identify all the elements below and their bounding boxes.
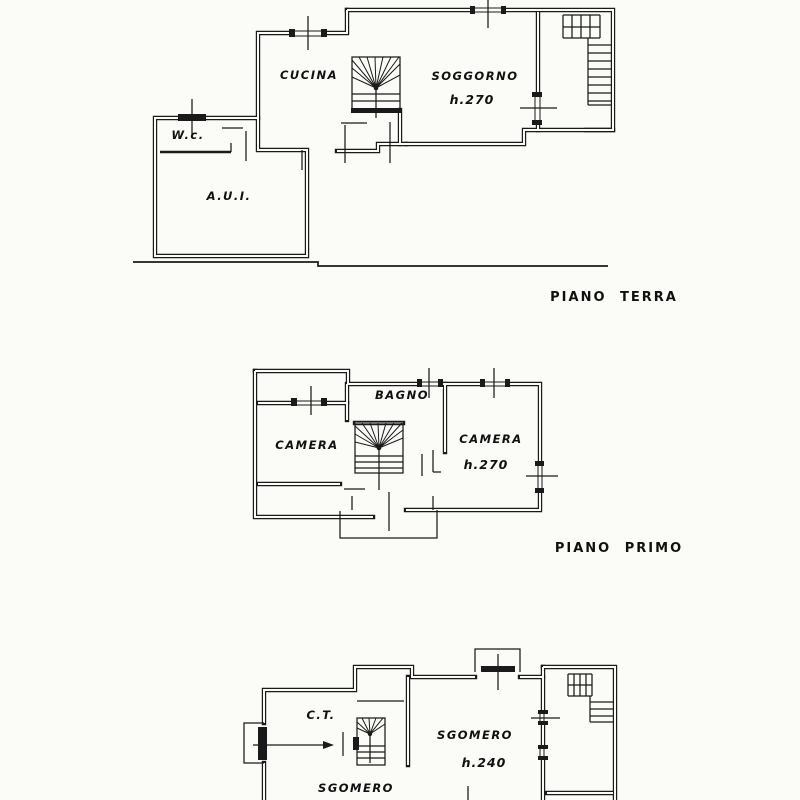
height-label-soggorno: h.270 <box>450 92 495 107</box>
room-label-bagno: BAGNO <box>375 388 429 402</box>
external-stair-ground <box>563 15 611 105</box>
room-label-sgomero-main: SGOMERO <box>437 728 513 742</box>
internal-stair-ground <box>351 57 401 118</box>
chimney <box>475 649 520 690</box>
room-label-soggorno: SOGGORNO <box>432 69 519 83</box>
window-storage-2 <box>537 745 549 760</box>
room-label-ct: C.T. <box>306 708 335 722</box>
room-label-wc: W.c. <box>171 128 204 142</box>
window-box-left <box>244 723 267 763</box>
window-camera-right-side <box>526 461 558 493</box>
floor-basement: C.T. SGOMERO h.240 SGOMERO <box>244 649 615 800</box>
room-label-camera-right: CAMERA <box>459 432 522 446</box>
room-label-aui: A.U.I. <box>206 189 252 203</box>
height-label-sgomero: h.240 <box>462 755 507 770</box>
room-label-camera-left: CAMERA <box>275 438 338 452</box>
window-kitchen <box>289 16 327 50</box>
external-stair-basement <box>568 674 613 722</box>
room-label-cucina: CUCINA <box>280 68 338 82</box>
ground-floor-walls <box>155 10 613 256</box>
ground-line <box>133 262 608 266</box>
window-living-top <box>470 0 506 28</box>
floor-piano-primo: BAGNO CAMERA CAMERA h.270 PIANO PRIMO <box>255 368 683 556</box>
caption-piano-primo: PIANO PRIMO <box>555 541 683 556</box>
height-label-camera: h.270 <box>464 457 509 472</box>
window-camera-left <box>291 386 327 415</box>
wc-counter <box>160 143 231 152</box>
floor-plan-drawing: CUCINA SOGGORNO h.270 W.c. A.U.I. PIANO … <box>0 0 800 800</box>
floor-plan-sheet: CUCINA SOGGORNO h.270 W.c. A.U.I. PIANO … <box>0 0 800 800</box>
internal-stair-basement <box>353 701 404 765</box>
window-camera-right-top <box>480 368 510 398</box>
window-storage-1 <box>531 710 560 725</box>
internal-stair-first <box>355 423 403 490</box>
window-living-right <box>520 92 557 125</box>
caption-piano-terra: PIANO TERRA <box>550 290 678 305</box>
room-label-sgomero-left: SGOMERO <box>318 781 394 795</box>
floor-piano-terra: CUCINA SOGGORNO h.270 W.c. A.U.I. PIANO … <box>133 0 678 305</box>
